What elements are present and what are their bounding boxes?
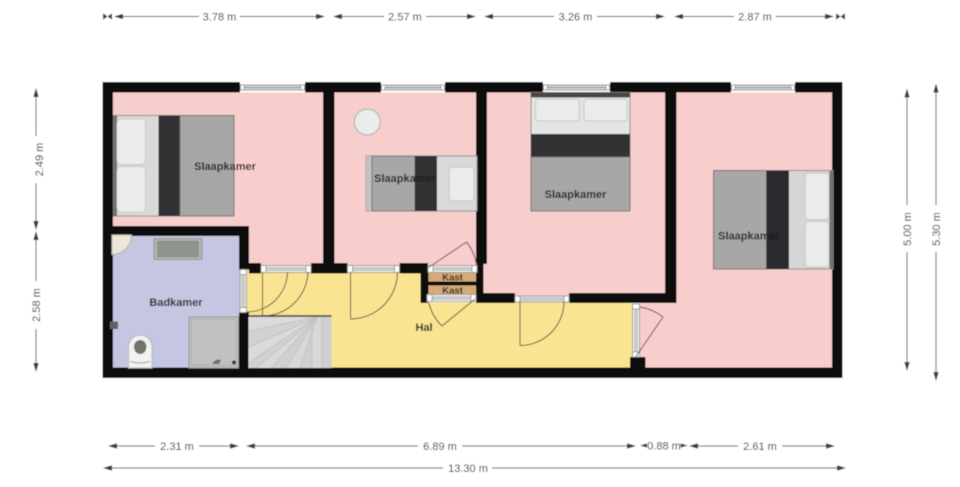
svg-text:Slaapkamer: Slaapkamer (718, 231, 780, 243)
svg-text:Kast: Kast (442, 273, 463, 284)
svg-text:Slaapkamer: Slaapkamer (374, 173, 436, 185)
svg-text:6.89 m: 6.89 m (423, 441, 457, 453)
svg-text:2.87 m: 2.87 m (738, 12, 772, 24)
svg-text:2.57 m: 2.57 m (388, 12, 422, 24)
svg-text:2.58 m: 2.58 m (31, 288, 43, 322)
svg-text:Hal: Hal (415, 322, 432, 334)
svg-text:3.26 m: 3.26 m (559, 12, 593, 24)
svg-text:0.88 m: 0.88 m (647, 441, 681, 453)
svg-text:Slaapkamer: Slaapkamer (194, 161, 256, 173)
svg-text:5.30 m: 5.30 m (931, 212, 943, 246)
svg-text:Kast: Kast (442, 286, 463, 297)
svg-text:Badkamer: Badkamer (149, 297, 203, 309)
svg-text:2.61 m: 2.61 m (743, 441, 777, 453)
svg-text:13.30 m: 13.30 m (448, 463, 488, 475)
svg-text:5.00 m: 5.00 m (902, 212, 914, 246)
svg-text:Slaapkamer: Slaapkamer (545, 189, 607, 201)
svg-text:2.31 m: 2.31 m (160, 441, 194, 453)
svg-text:2.49 m: 2.49 m (34, 143, 46, 177)
svg-text:3.78 m: 3.78 m (203, 12, 237, 24)
